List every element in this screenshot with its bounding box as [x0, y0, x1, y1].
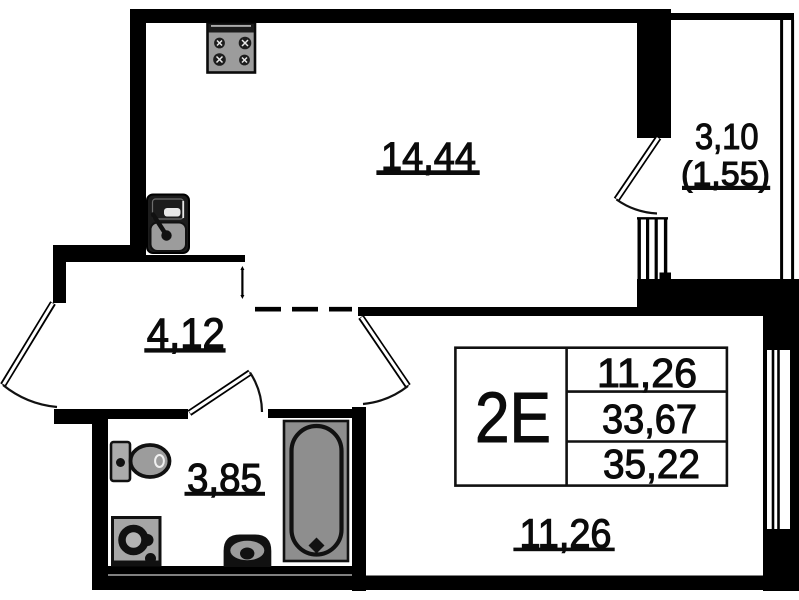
svg-text:2Е: 2Е [475, 379, 551, 458]
svg-text:11,26: 11,26 [597, 350, 697, 396]
svg-text:33,67: 33,67 [602, 396, 697, 442]
svg-text:3,10: 3,10 [695, 116, 759, 157]
svg-text:35,22: 35,22 [603, 441, 700, 487]
